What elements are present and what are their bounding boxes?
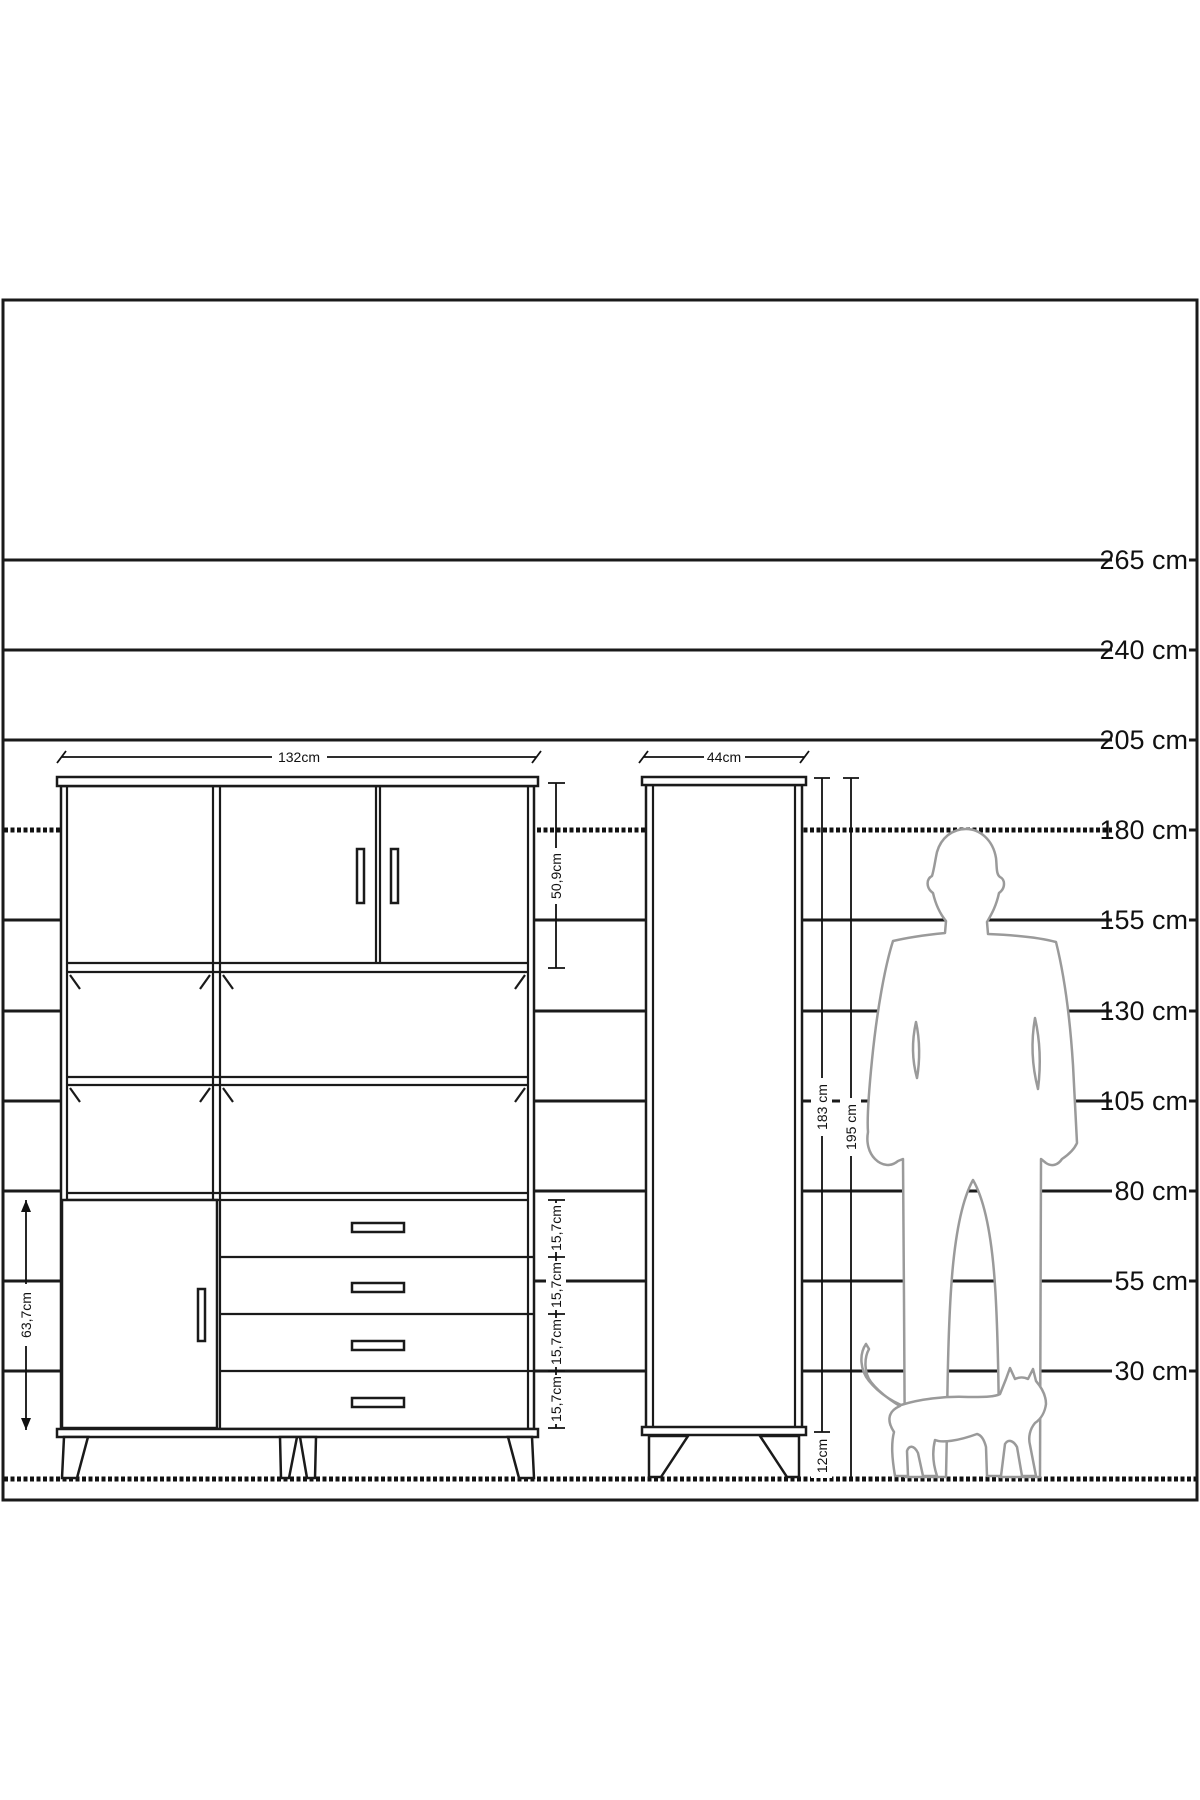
small-cabinet xyxy=(642,777,806,1477)
scale-label-80: 80 cm xyxy=(1114,1176,1188,1206)
cabinet-leg xyxy=(760,1436,799,1477)
bottom-left-door-handle xyxy=(198,1289,205,1341)
dim-label-509: 50,9cm xyxy=(548,853,564,899)
drawer-handle-4 xyxy=(352,1398,404,1407)
scale-label-55: 55 cm xyxy=(1114,1266,1188,1296)
dim-label-157-3: 15,7cm xyxy=(548,1319,564,1365)
dim-label-44: 44cm xyxy=(707,749,741,765)
dim-label-637: 63,7cm xyxy=(18,1292,34,1338)
cabinet-leg xyxy=(649,1436,688,1477)
scale-label-180: 180 cm xyxy=(1099,815,1188,845)
dim-label-183: 183 cm xyxy=(814,1084,830,1130)
diagram-canvas: 132cm 44cm 50,9cm 15,7cm 15,7cm 15,7cm 1… xyxy=(0,0,1200,1800)
furniture-dimension-diagram: 132cm 44cm 50,9cm 15,7cm 15,7cm 15,7cm 1… xyxy=(0,0,1200,1800)
small-cabinet-bottom-board xyxy=(642,1427,806,1435)
dim-top-section-height: 50,9cm xyxy=(548,783,565,968)
dim-width-small: 44cm xyxy=(639,749,809,765)
dim-drawer-heights: 15,7cm 15,7cm 15,7cm 15,7cm xyxy=(546,1200,566,1428)
scale-label-130: 130 cm xyxy=(1099,996,1188,1026)
cabinet-leg xyxy=(300,1437,316,1478)
small-cabinet-body xyxy=(646,785,802,1428)
drawer-handle-1 xyxy=(352,1223,404,1232)
scale-label-155: 155 cm xyxy=(1099,905,1188,935)
dim-label-12: 12cm xyxy=(814,1439,830,1473)
top-door-right-handle xyxy=(391,849,398,903)
scale-label-240: 240 cm xyxy=(1099,635,1188,665)
dim-leg-height: 12cm xyxy=(811,1433,832,1478)
dim-label-195: 195 cm xyxy=(843,1104,859,1150)
large-cabinet xyxy=(57,777,538,1478)
drawer-handle-2 xyxy=(352,1283,404,1292)
scale-label-105: 105 cm xyxy=(1099,1086,1188,1116)
small-cabinet-top-board xyxy=(642,777,806,785)
dim-label-157-4: 15,7cm xyxy=(548,1376,564,1422)
cabinet-leg xyxy=(508,1437,534,1478)
dim-label-132: 132cm xyxy=(278,749,320,765)
dim-body-height: 183 cm xyxy=(811,778,832,1432)
top-door-left-handle xyxy=(357,849,364,903)
jacket-pocket-left xyxy=(913,1022,919,1078)
dim-total-height: 195 cm xyxy=(840,778,861,1478)
scale-label-30: 30 cm xyxy=(1114,1356,1188,1386)
scale-label-265: 265 cm xyxy=(1099,545,1188,575)
scale-label-205: 205 cm xyxy=(1099,725,1188,755)
dim-label-157-1: 15,7cm xyxy=(548,1205,564,1251)
drawer-handle-3 xyxy=(352,1341,404,1350)
bottom-left-door xyxy=(62,1200,217,1428)
cabinet-leg xyxy=(62,1437,88,1478)
cabinet-leg xyxy=(280,1437,297,1478)
large-cabinet-top-board xyxy=(57,777,538,786)
height-scale-labels: 265 cm 240 cm 205 cm 180 cm 155 cm 130 c… xyxy=(1099,545,1196,1386)
man-silhouette-icon xyxy=(867,829,1077,1477)
dim-left-door-height: 63,7cm xyxy=(15,1200,36,1430)
dim-label-157-2: 15,7cm xyxy=(548,1262,564,1308)
dim-width-large: 132cm xyxy=(57,749,541,765)
